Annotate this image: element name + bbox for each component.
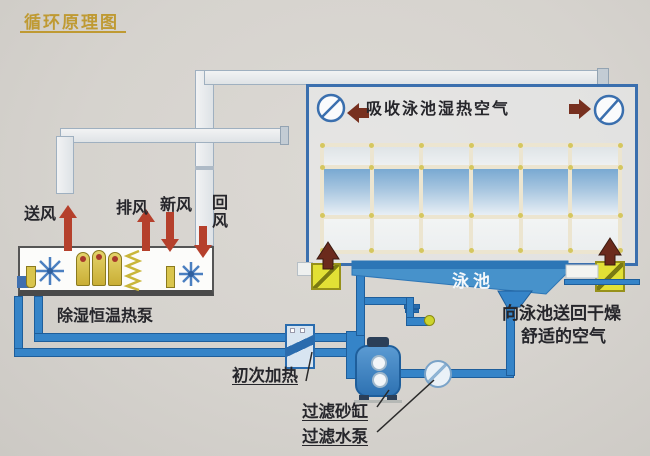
- hall-fan-left-icon: [318, 95, 344, 121]
- return-air-arrow-icon: [194, 245, 212, 258]
- fresh-air-arrow-stem: [166, 212, 174, 240]
- vent-up-arrow-left-icon: [317, 242, 339, 269]
- pool-label: 泳池: [452, 267, 494, 292]
- airflow-arrow-right-icon: [569, 99, 591, 119]
- filter-pump-label: 过滤水泵: [302, 423, 368, 447]
- heating-coil-icon: [127, 251, 139, 290]
- pointer-line-sand-filter: [377, 390, 389, 407]
- heat-pump-label: 除湿恒温热泵: [57, 302, 153, 326]
- return-air-arrow-stem: [199, 226, 207, 246]
- exhaust-air-arrow-stem: [142, 221, 150, 251]
- return-air-label: 回风: [212, 194, 232, 231]
- exhaust-air-label: 排风: [116, 194, 148, 218]
- return-dry-air-label-line2: 舒适的空气: [521, 322, 606, 347]
- hall-fan-right-icon: [595, 96, 623, 124]
- sand-filter-label: 过滤砂缸: [302, 398, 368, 422]
- supply-air-label: 送风: [24, 200, 56, 224]
- initial-heating-label: 初次加热: [232, 362, 298, 386]
- fresh-air-arrow-icon: [161, 239, 179, 252]
- return-dry-air-label-line1: 向泳池送回干燥: [502, 299, 621, 324]
- shapes-overlay: [0, 0, 650, 456]
- pointer-line-filter-pump: [377, 380, 434, 432]
- fresh-air-label: 新风: [160, 191, 192, 215]
- diagram-canvas: 循环原理图: [0, 0, 650, 456]
- absorb-humid-air-label: 吸收泳池湿热空气: [366, 95, 510, 119]
- supply-air-arrow-stem: [64, 217, 72, 251]
- pointer-line-initial-heating: [306, 352, 312, 381]
- pool-deck: [566, 265, 598, 278]
- machine-fan-left-icon: [36, 257, 64, 285]
- vent-up-arrow-right-icon: [599, 238, 621, 265]
- machine-fan-right-icon: [179, 262, 203, 286]
